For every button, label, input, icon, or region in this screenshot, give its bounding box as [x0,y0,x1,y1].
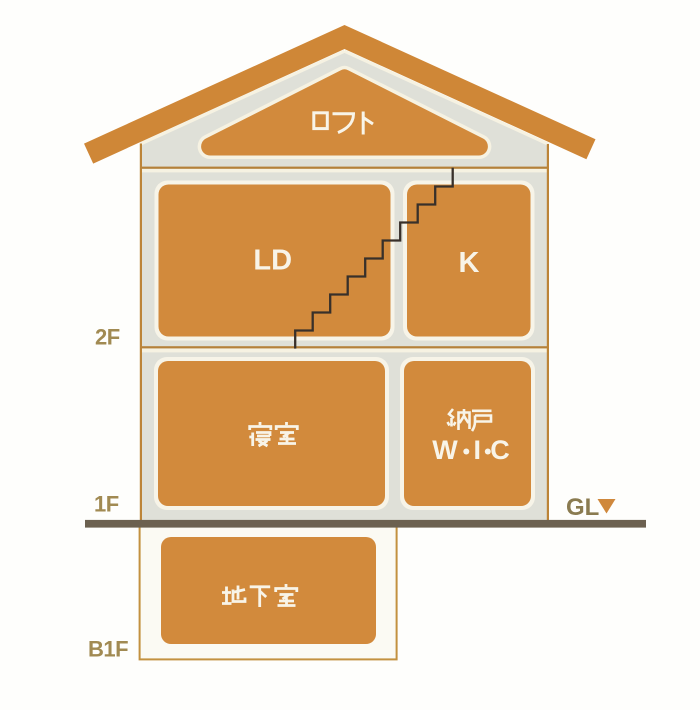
svg-text:C: C [490,435,510,465]
svg-text:2F: 2F [95,324,120,349]
svg-text:B1F: B1F [88,637,128,662]
svg-text:LD: LD [253,244,292,276]
svg-text:1F: 1F [94,492,119,517]
svg-text:GL: GL [566,494,599,521]
svg-text:W: W [432,435,458,465]
svg-text:K: K [459,247,480,279]
svg-text:I: I [473,435,481,465]
